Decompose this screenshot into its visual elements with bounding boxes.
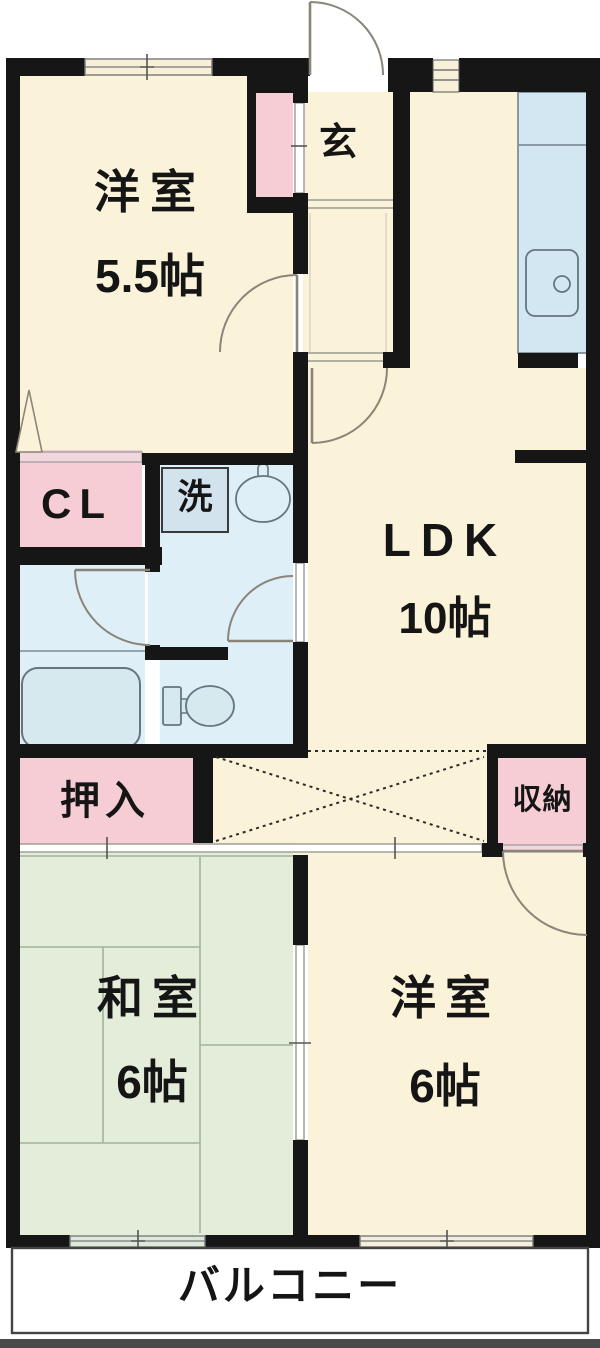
bathtub-icon (22, 668, 140, 748)
changing-room-floor (12, 565, 145, 650)
cl-closet-front (13, 452, 142, 462)
entrance-door (310, 2, 383, 75)
entrance-closet (256, 93, 293, 197)
storage-closet (498, 758, 587, 851)
japanese-room-floor (20, 843, 293, 1235)
entrance-closet-door (295, 103, 304, 193)
balcony-outline (12, 1248, 588, 1333)
toilet-icon (163, 686, 234, 726)
floorplan-drawing (0, 0, 600, 1348)
kitchen-counter (518, 92, 587, 353)
oshiire-closet (18, 758, 193, 844)
entrance-hall-floor (303, 92, 393, 368)
cl-closet (13, 450, 142, 548)
ldk-floor (308, 368, 587, 758)
ldk-open-area-floor (213, 758, 487, 856)
washing-machine-icon (162, 468, 228, 532)
floorplan: 洋室 5.5帖 玄 LDK 10帖 CL 洗 押入 収納 和室 6帖 洋室 6帖… (0, 0, 600, 1348)
ldk-upper-floor (410, 92, 518, 368)
meter-box (433, 60, 459, 92)
fusuma-sliding-doors (18, 844, 482, 852)
western-room-6-floor (308, 843, 587, 1235)
washroom-sliding-door (296, 563, 304, 642)
kitchen-sink-icon (526, 250, 578, 316)
